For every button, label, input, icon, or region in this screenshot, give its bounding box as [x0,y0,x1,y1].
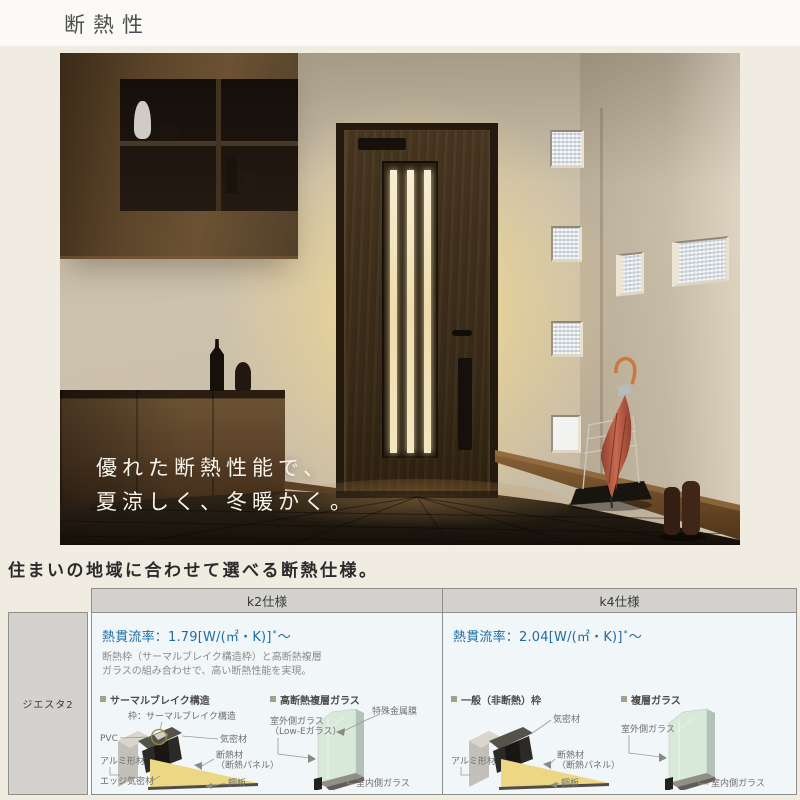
caption-line-1: 優れた断熱性能で、 [96,451,356,485]
label-metal-film: 特殊金属膜 [372,707,417,717]
label-aluminum: アルミ形材 [451,757,496,767]
insulation-spec-table: k2仕様 k4仕様 ジエスタ2 熱貫流率：1.79[W/(㎡・K)]*～ 断熱枠… [8,588,797,795]
caption-line-2: 夏涼しく、冬暖かく。 [96,485,356,519]
k2-glass-diagram: 高断熱複層ガラス [268,693,438,793]
k4-glass-diagram: 複層ガラス 室外側ガラス [619,693,789,793]
label-frame-anchor: 枠：サーマルブレイク構造 [128,712,236,722]
glass-pane-art [619,707,787,790]
k2-frame-diagram: サーマルブレイク構造 [98,693,268,793]
k4-glass-canvas: 室外側ガラス 室内側ガラス [619,707,787,790]
label-outer-glass: 室外側ガラス （Low-Eガラス） [270,717,341,737]
door-floor-shadow [336,491,498,498]
umbrella-handle [616,359,635,384]
k2-diagrams: サーマルブレイク構造 [98,693,438,793]
k2-u-value-tilde: ～ [278,630,291,645]
label-inner-glass: 室内側ガラス [711,779,765,789]
label-aluminum: アルミ形材 [100,757,145,767]
label-outer-glass: 室外側ガラス [621,725,675,735]
label-steel: 鋼板 [561,779,579,789]
k2-frame-diagram-title: サーマルブレイク構造 [98,693,268,705]
square-bullet-icon [100,696,106,702]
k2-u-value-text: 熱貫流率：1.79[W/(㎡・K)] [102,630,272,645]
label-airtight: 気密材 [220,735,247,745]
k2-glass-canvas: 特殊金属膜 室外側ガラス （Low-Eガラス） 室内側ガラス [268,707,436,790]
umbrella-tip [611,498,612,508]
square-bullet-icon [451,696,457,702]
umbrella-band [618,384,631,396]
k4-u-value-text: 熱貫流率：2.04[W/(㎡・K)] [453,630,623,645]
column-header-k4: k4仕様 [442,588,797,613]
k2-description-line-2: ガラスの組み合わせで、高い断熱性能を実現。 [102,665,322,679]
label-airtight: 気密材 [553,715,580,725]
row-label-product: ジエスタ2 [8,612,88,795]
square-bullet-icon [621,696,627,702]
photo-caption: 優れた断熱性能で、 夏涼しく、冬暖かく。 [96,451,356,519]
k4-u-value-note-mark: * [624,629,628,638]
top-band: 断熱性 [0,0,800,46]
label-insulation: 断熱材 （断熱パネル） [557,751,620,771]
k2-description-line-1: 断熱枠（サーマルブレイク構造枠）と高断熱複層 [102,651,322,665]
k4-u-value: 熱貫流率：2.04[W/(㎡・K)]*～ [453,626,642,645]
entryway-photo: 優れた断熱性能で、 夏涼しく、冬暖かく。 [60,53,740,545]
k2-u-value-note-mark: * [273,629,277,638]
k4-frame-canvas: 気密材 アルミ形材 断熱材 （断熱パネル） 鋼板 [449,707,617,790]
k4-diagrams: 一般（非断熱）枠 [449,693,789,793]
cell-k4: 熱貫流率：2.04[W/(㎡・K)]*～ 一般（非断熱）枠 [442,612,797,795]
k4-u-value-tilde: ～ [629,630,642,645]
label-pvc: PVC [100,734,118,744]
square-bullet-icon [270,696,276,702]
label-steel: 鋼板 [228,779,246,789]
label-edge-airtight: エッジ気密材 [100,777,154,787]
k4-frame-diagram: 一般（非断熱）枠 [449,693,619,793]
cell-k2: 熱貫流率：1.79[W/(㎡・K)]*～ 断熱枠（サーマルブレイク構造枠）と高断… [91,612,443,795]
k2-u-value: 熱貫流率：1.79[W/(㎡・K)]*～ [102,626,291,645]
section-heading: 住まいの地域に合わせて選べる断熱仕様。 [8,556,379,581]
label-inner-glass: 室内側ガラス [356,779,410,789]
k4-frame-diagram-title: 一般（非断熱）枠 [449,693,619,705]
page-title: 断熱性 [64,9,151,39]
k2-frame-canvas: 枠：サーマルブレイク構造 PVC 気密材 アルミ形材 断熱材 （断熱パネル） エ… [98,707,266,790]
frame-cross-section-art [449,707,617,790]
k4-glass-diagram-title: 複層ガラス [619,693,789,705]
k2-description: 断熱枠（サーマルブレイク構造枠）と高断熱複層 ガラスの組み合わせで、高い断熱性能… [102,651,322,679]
k2-glass-diagram-title: 高断熱複層ガラス [268,693,438,705]
column-header-k2: k2仕様 [91,588,443,613]
